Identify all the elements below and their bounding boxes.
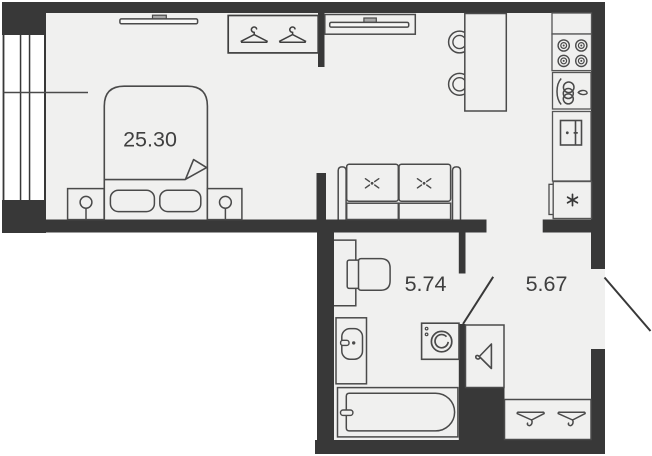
- svg-text:25.30: 25.30: [123, 128, 177, 152]
- svg-text:5.67: 5.67: [526, 272, 568, 296]
- svg-text:5.74: 5.74: [405, 272, 447, 296]
